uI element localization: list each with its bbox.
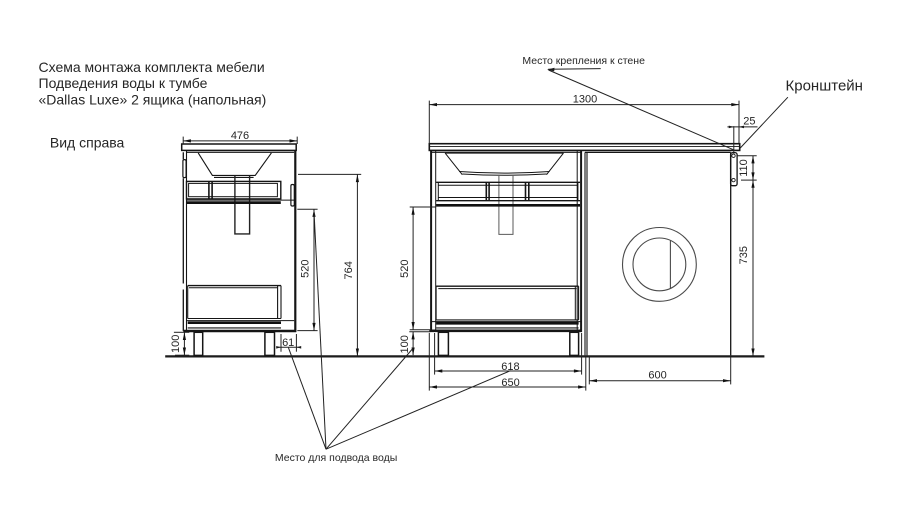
svg-text:1300: 1300 — [573, 94, 597, 106]
svg-text:Место крепления к стене: Место крепления к стене — [522, 55, 645, 67]
svg-text:764: 764 — [343, 261, 355, 279]
svg-text:Подведения воды к тумбе: Подведения воды к тумбе — [39, 75, 208, 91]
svg-text:25: 25 — [743, 116, 755, 128]
svg-text:61: 61 — [282, 337, 294, 349]
svg-text:600: 600 — [648, 369, 666, 381]
svg-text:100: 100 — [170, 335, 182, 353]
svg-text:650: 650 — [501, 377, 519, 389]
svg-text:735: 735 — [738, 246, 750, 264]
svg-text:Схема монтажа комплекта мебели: Схема монтажа комплекта мебели — [39, 59, 265, 75]
svg-text:520: 520 — [399, 260, 411, 278]
svg-text:618: 618 — [501, 361, 519, 373]
svg-text:100: 100 — [399, 335, 411, 353]
svg-text:Вид справа: Вид справа — [50, 135, 125, 151]
svg-text:520: 520 — [300, 260, 312, 278]
svg-text:476: 476 — [231, 130, 249, 142]
svg-text:«Dallas Luxe» 2 ящика (напольн: «Dallas Luxe» 2 ящика (напольная) — [39, 91, 267, 107]
svg-text:110: 110 — [738, 159, 750, 177]
svg-text:Кронштейн: Кронштейн — [786, 78, 863, 95]
svg-text:Место для подвода воды: Место для подвода воды — [275, 452, 397, 464]
